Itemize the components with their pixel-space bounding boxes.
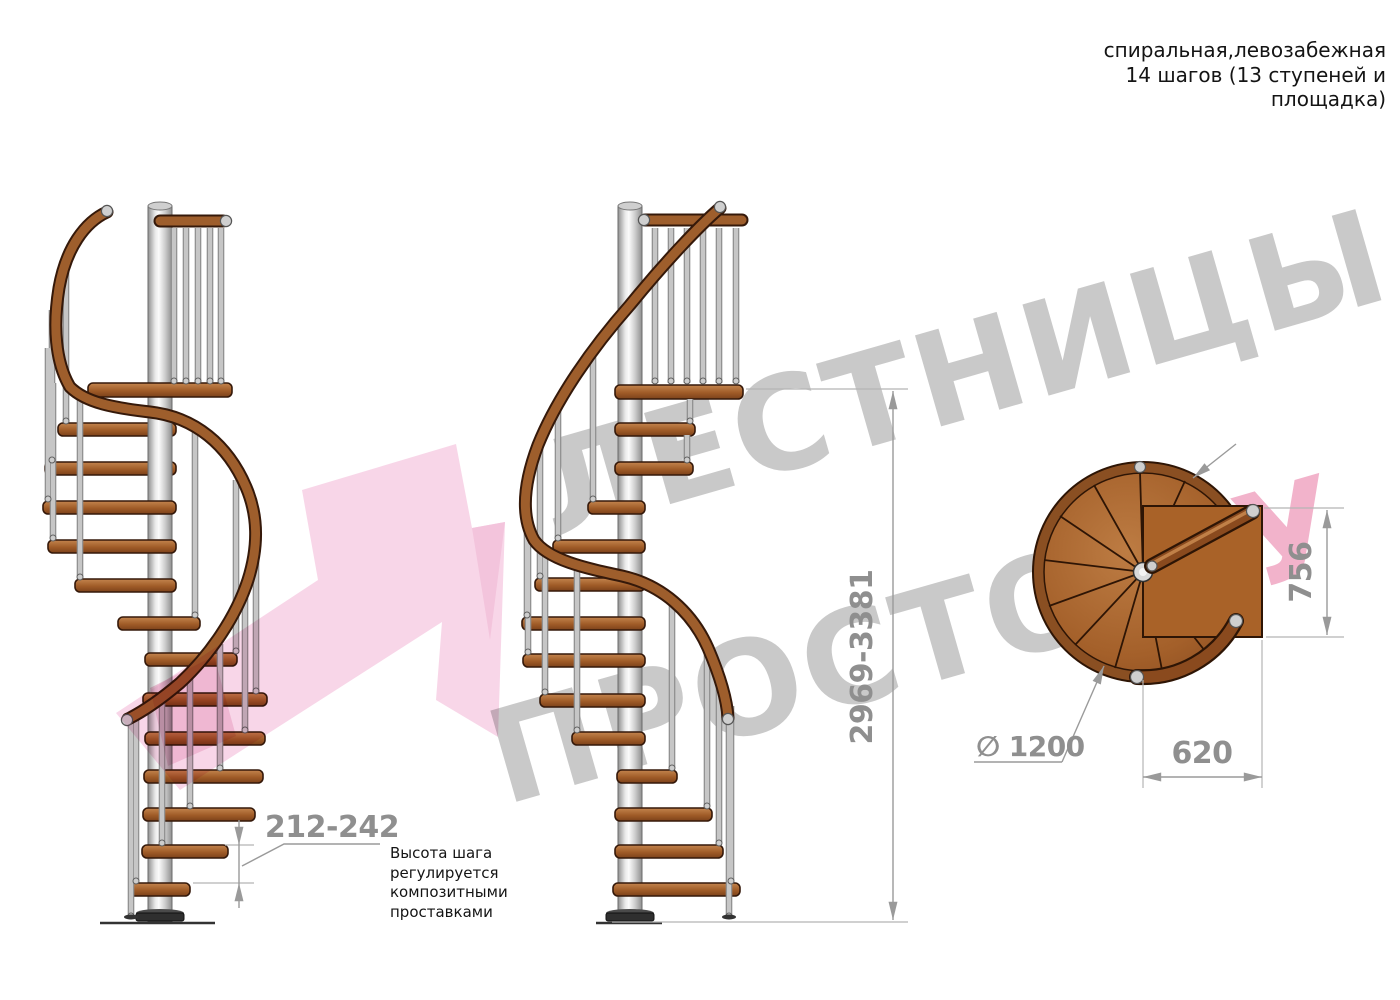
landing-width-value: 620: [1171, 736, 1232, 771]
step-height-note: Высота шага регулируется композитными пр…: [390, 844, 508, 922]
note-line-2: регулируется: [390, 864, 508, 884]
center-column-cap: [618, 202, 642, 210]
left-staircase-side-view: [43, 202, 267, 923]
center-landing-handrail: [638, 214, 742, 225]
drawing-title: спиральная,левозабежная 14 шагов (13 сту…: [1104, 38, 1386, 112]
step-height-value: 212-242: [265, 810, 399, 845]
dimension-step-height: 212-242: [193, 810, 399, 908]
center-base: [596, 909, 736, 923]
technical-drawing-page: ЛЕСТНИЦЫ ПРОСТО.РУ: [0, 0, 1400, 1000]
landing-depth-value: 756: [1284, 541, 1319, 602]
left-base: [100, 909, 215, 923]
note-line-1: Высота шага: [390, 844, 508, 864]
left-column-cap: [148, 202, 172, 210]
plan-landing: [1143, 506, 1262, 637]
left-landing-handrail: [160, 215, 232, 226]
spiral-staircase-drawing: ЛЕСТНИЦЫ ПРОСТО.РУ: [0, 0, 1400, 1000]
note-line-3: композитными: [390, 883, 508, 903]
total-height-value: 2969-3381: [845, 570, 880, 745]
title-line-3: площадка): [1104, 87, 1386, 112]
plan-rim-connector: [1135, 462, 1146, 473]
title-line-2: 14 шагов (13 ступеней и: [1104, 63, 1386, 88]
diameter-value: ∅ 1200: [976, 730, 1085, 763]
title-line-1: спиральная,левозабежная: [1104, 38, 1386, 63]
note-line-4: проставками: [390, 903, 508, 923]
